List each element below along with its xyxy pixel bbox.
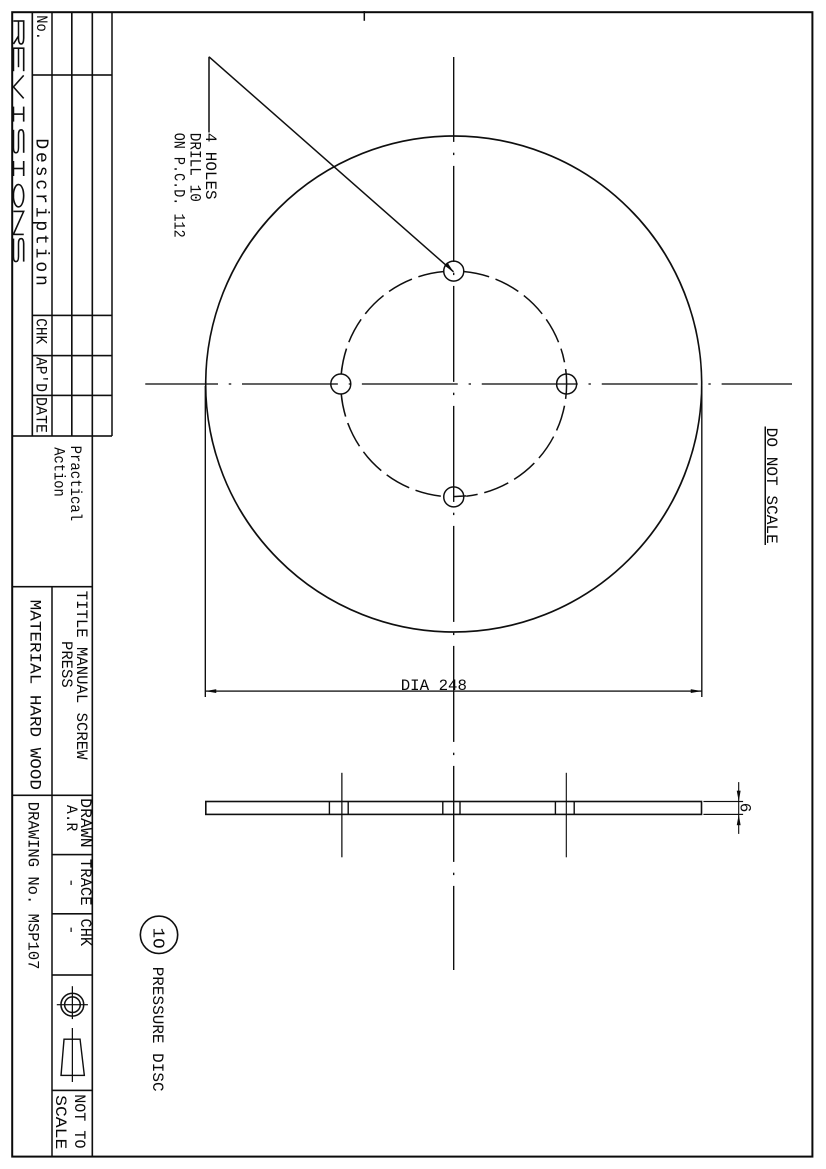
svg-text:DRILL 10: DRILL 10 [185, 133, 203, 202]
svg-text:CHK: CHK [32, 318, 50, 344]
svg-text:DRAWING No. MSP107: DRAWING No. MSP107 [24, 802, 42, 970]
svg-text:DIA 248: DIA 248 [401, 677, 467, 695]
svg-text:-: - [62, 878, 80, 888]
svg-text:NOT TO: NOT TO [70, 1094, 88, 1148]
svg-text:4 HOLES: 4 HOLES [201, 133, 219, 200]
svg-text:-: - [62, 925, 80, 935]
svg-text:ON P.C.D. 112: ON P.C.D. 112 [169, 133, 187, 238]
svg-text:Action: Action [50, 447, 68, 497]
svg-text:Description: Description [31, 138, 51, 285]
svg-text:AP'D: AP'D [32, 357, 50, 392]
svg-text:1O: 1O [149, 928, 168, 949]
svg-text:A.R: A.R [62, 805, 80, 832]
svg-text:PRESS: PRESS [57, 641, 75, 688]
svg-text:SCALE: SCALE [51, 1095, 69, 1149]
svg-text:6: 6 [736, 803, 754, 813]
svg-text:DATE: DATE [32, 397, 50, 433]
svg-text:MATERIAL HARD WOOD: MATERIAL HARD WOOD [26, 600, 44, 790]
svg-text:Practical: Practical [66, 446, 84, 522]
svg-text:No.: No. [32, 15, 50, 40]
svg-text:PRESSURE DISC: PRESSURE DISC [148, 967, 166, 1092]
